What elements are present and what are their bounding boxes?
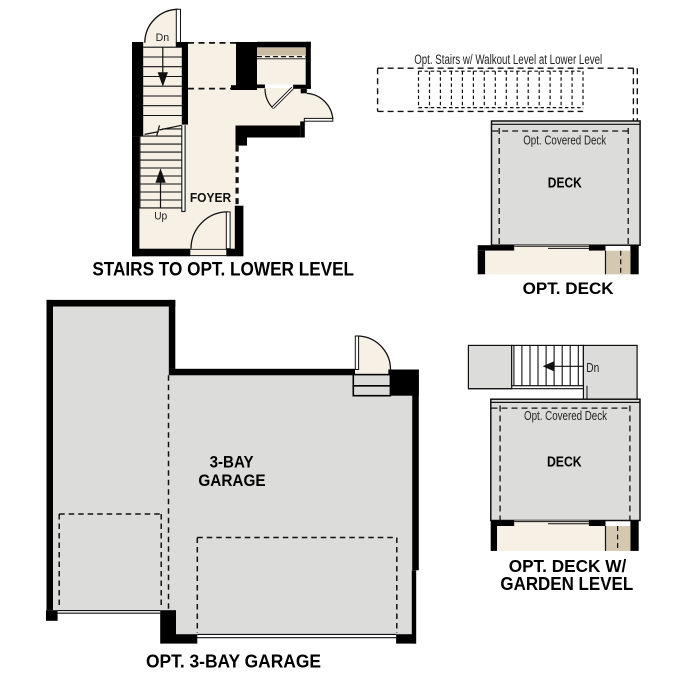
svg-text:Up: Up <box>154 211 167 223</box>
svg-text:FOYER: FOYER <box>190 191 231 205</box>
svg-text:Opt. Covered Deck: Opt. Covered Deck <box>524 408 607 423</box>
svg-text:DECK: DECK <box>547 454 582 470</box>
svg-text:3-BAY: 3-BAY <box>210 454 254 472</box>
svg-text:GARAGE: GARAGE <box>198 472 265 490</box>
svg-text:Opt. Covered Deck: Opt. Covered Deck <box>523 133 606 148</box>
svg-text:OPT. DECK: OPT. DECK <box>523 279 615 298</box>
svg-text:GARDEN LEVEL: GARDEN LEVEL <box>500 573 633 594</box>
svg-text:Dn: Dn <box>156 32 170 44</box>
svg-text:DECK: DECK <box>548 176 582 192</box>
svg-text:Opt. Stairs w/ Walkout Level a: Opt. Stairs w/ Walkout Level at Lower Le… <box>414 52 602 67</box>
svg-text:OPT. 3-BAY GARAGE: OPT. 3-BAY GARAGE <box>146 651 321 672</box>
svg-text:Dn: Dn <box>586 361 599 375</box>
svg-text:STAIRS TO OPT. LOWER LEVEL: STAIRS TO OPT. LOWER LEVEL <box>92 259 354 281</box>
